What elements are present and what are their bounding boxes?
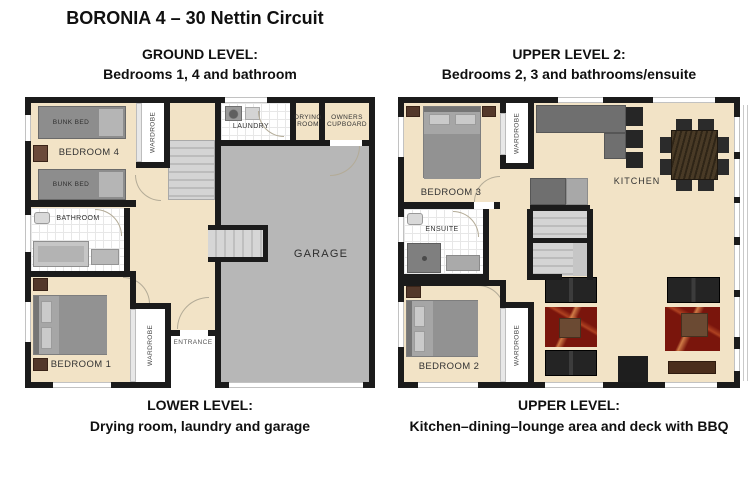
- floorplan-sheet: BORONIA 4 – 30 Nettin Circuit GROUND LEV…: [0, 0, 750, 500]
- bunk-bed-bottom: BUNK BED: [38, 169, 126, 200]
- ground-level-plan: BUNK BED BUNK BED: [25, 97, 375, 388]
- wall: [528, 103, 534, 169]
- wall: [528, 302, 534, 382]
- window: [25, 215, 31, 252]
- kitchen-counter-return: [604, 133, 626, 159]
- window: [734, 203, 740, 237]
- room-label-wardrobe: WARDROBE: [506, 310, 528, 380]
- wall: [164, 103, 170, 168]
- nightstand: [406, 286, 421, 298]
- wall: [31, 271, 130, 277]
- bed-pillow: [414, 331, 425, 352]
- shower: [407, 243, 441, 273]
- room-label-kitchen: KITCHEN: [601, 175, 673, 187]
- room-label-wardrobe: WARDROBE: [136, 311, 165, 380]
- room-label-bedroom3: BEDROOM 3: [416, 187, 486, 199]
- bed-blanket: [59, 296, 107, 354]
- garage-door: [229, 382, 363, 388]
- tv-unit: [668, 361, 716, 374]
- bunk-pillow: [99, 109, 123, 136]
- door-arc: [135, 175, 161, 201]
- door-gap: [474, 202, 494, 209]
- coffee-table: [559, 318, 581, 338]
- bathtub: [33, 241, 89, 267]
- room-label-laundry: LAUNDRY: [223, 122, 279, 132]
- dining-chair: [698, 180, 714, 191]
- window: [398, 217, 404, 242]
- bunk-bed-label: BUNK BED: [41, 107, 101, 138]
- bed-pillow: [414, 306, 425, 327]
- door-gap: [330, 140, 362, 146]
- door-gap: [180, 330, 208, 336]
- room-label-owners-cupboard: OWNERS CUPBOARD: [321, 109, 373, 133]
- bed-headboard: [34, 296, 39, 354]
- stairs-upper-flight: [533, 211, 590, 238]
- window: [225, 97, 267, 103]
- window: [418, 382, 478, 388]
- kitchen-counter: [536, 105, 626, 133]
- dining-chair: [718, 137, 729, 153]
- stair-divider-wall: [533, 238, 590, 243]
- window: [398, 117, 404, 157]
- sofa: [667, 277, 720, 303]
- bed-headboard: [407, 301, 412, 356]
- page-title: BORONIA 4 – 30 Nettin Circuit: [20, 8, 370, 29]
- toilet-icon: [407, 213, 423, 225]
- deck-edge: [743, 105, 748, 381]
- door-arc: [177, 297, 209, 329]
- stairs-lower-flight: [533, 243, 573, 276]
- left-footer-line1: LOWER LEVEL:: [25, 397, 375, 413]
- dining-chair: [660, 137, 671, 153]
- dining-chair: [698, 119, 714, 130]
- dining-chair: [676, 119, 692, 130]
- sofa: [545, 350, 597, 376]
- bed-blanket: [433, 301, 478, 356]
- wall: [530, 205, 590, 211]
- wall: [500, 163, 534, 169]
- kitchen-island: [530, 178, 566, 205]
- left-footer-line2: Drying room, laundry and garage: [25, 418, 375, 434]
- bed-headboard: [424, 107, 480, 112]
- dining-chair: [718, 159, 729, 175]
- stairs-up: [168, 140, 215, 200]
- bunk-bed-top: BUNK BED: [38, 106, 126, 139]
- kitchen-appliance: [626, 152, 643, 168]
- fireplace: [618, 356, 648, 382]
- wall: [136, 162, 170, 168]
- room-label-garage: GARAGE: [276, 247, 366, 261]
- shower-drain: [422, 256, 427, 261]
- bunk-pillow: [99, 172, 123, 197]
- left-header-line1: GROUND LEVEL:: [25, 46, 375, 62]
- kitchen-appliance: [626, 130, 643, 148]
- right-footer-line1: UPPER LEVEL:: [398, 397, 740, 413]
- room-label-wardrobe: WARDROBE: [506, 105, 528, 161]
- room-label-bedroom2: BEDROOM 2: [412, 361, 486, 373]
- wall: [404, 280, 500, 286]
- wall: [527, 274, 562, 280]
- kitchen-island-bench: [566, 178, 588, 205]
- window: [653, 97, 715, 103]
- bed-pillow: [429, 114, 450, 125]
- ensuite-vanity: [446, 255, 480, 271]
- window: [734, 349, 740, 371]
- nightstand: [482, 106, 496, 117]
- bed-bedroom3: [423, 106, 481, 178]
- dining-chair: [676, 180, 692, 191]
- window: [25, 115, 31, 141]
- bunk-bed-label: BUNK BED: [41, 170, 101, 199]
- window: [734, 117, 740, 152]
- window: [734, 297, 740, 337]
- bed-pillow: [455, 114, 476, 125]
- window: [665, 382, 717, 388]
- wall: [124, 208, 130, 271]
- bed-pillow: [41, 301, 52, 323]
- left-header-line2: Bedrooms 1, 4 and bathroom: [25, 66, 375, 82]
- wall: [31, 200, 136, 207]
- garage-floor: [221, 146, 369, 382]
- wall: [369, 97, 375, 388]
- washing-machine-icon: [225, 106, 242, 121]
- right-header-line1: UPPER LEVEL 2:: [398, 46, 740, 62]
- stairs-lower-flight: [208, 225, 268, 262]
- room-label-bedroom1: BEDROOM 1: [37, 359, 125, 371]
- room-label-entrance: ENTRANCE: [169, 338, 217, 347]
- window: [53, 382, 111, 388]
- wall: [587, 209, 593, 280]
- window: [734, 159, 740, 197]
- room-label-wardrobe: WARDROBE: [142, 105, 164, 160]
- window: [558, 97, 603, 103]
- kitchen-appliance: [626, 107, 643, 126]
- coffee-table: [681, 313, 708, 337]
- bed-pillow: [41, 327, 52, 349]
- upper-level-plan: BEDROOM 3 WARDROBE KITCHEN ENSUITE BEDRO…: [398, 97, 740, 388]
- sofa: [545, 277, 597, 303]
- bathroom-vanity: [91, 249, 119, 265]
- door-arc: [123, 277, 150, 304]
- window: [734, 245, 740, 290]
- wall: [483, 209, 489, 274]
- room-label-bathroom: BATHROOM: [47, 214, 109, 224]
- bed-blanket: [424, 134, 480, 179]
- room-label-bedroom4: BEDROOM 4: [43, 147, 135, 159]
- dining-chair: [660, 159, 671, 175]
- bed-bedroom2: [406, 300, 478, 357]
- wall: [527, 209, 533, 280]
- nightstand: [33, 278, 48, 291]
- right-header-line2: Bedrooms 2, 3 and bathrooms/ensuite: [384, 66, 750, 82]
- room-label-ensuite: ENSUITE: [422, 225, 462, 235]
- bed-bedroom1: [33, 295, 107, 355]
- window: [545, 382, 603, 388]
- nightstand: [406, 106, 420, 117]
- window: [398, 302, 404, 347]
- right-footer-line2: Kitchen–dining–lounge area and deck with…: [384, 418, 750, 434]
- wall: [500, 280, 506, 302]
- room-label-drying-room: DRYING ROOM: [292, 109, 324, 133]
- window: [25, 302, 31, 342]
- dining-table: [671, 130, 718, 180]
